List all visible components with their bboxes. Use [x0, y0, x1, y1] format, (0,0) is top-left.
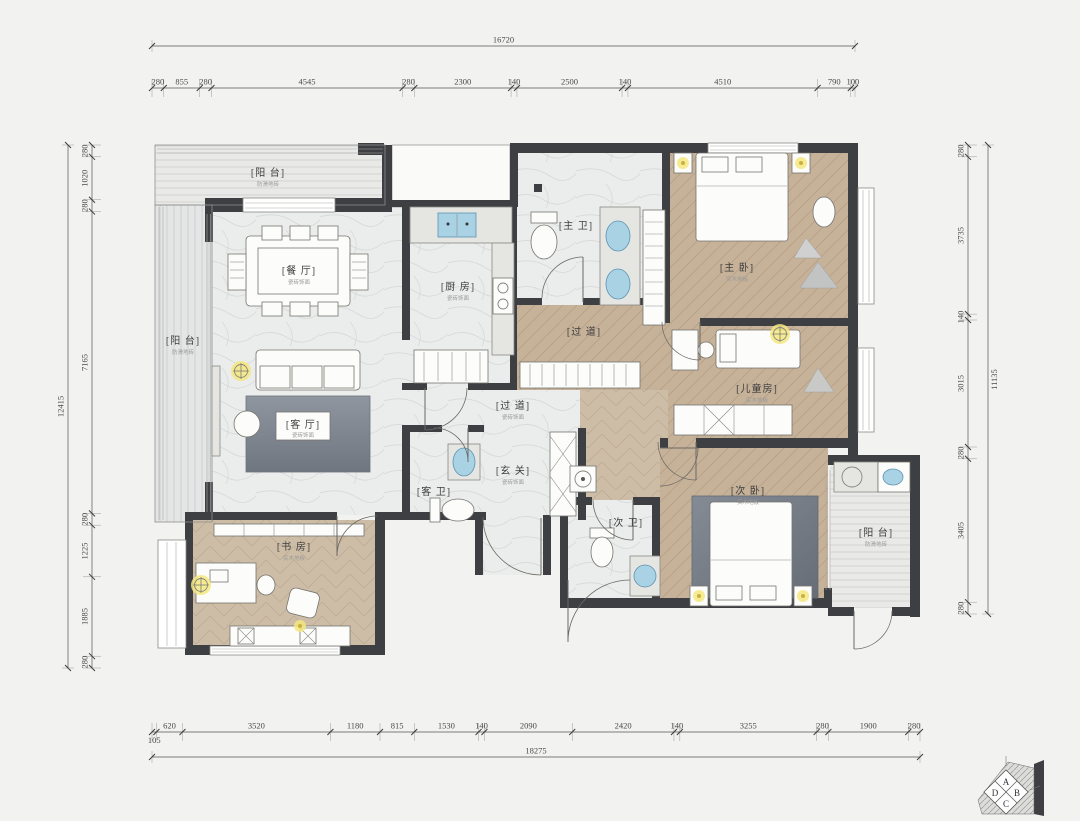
room-sub-master-bed: 实木地板 [726, 275, 749, 283]
room-label-foyer: [玄 关] [496, 464, 530, 477]
toilet [531, 225, 557, 259]
compass: A B C D [978, 756, 1044, 816]
ceiling-lamp [191, 575, 211, 595]
room-label-second-bed: [次 卧] [731, 484, 765, 497]
dim-label: 3015 [956, 375, 966, 392]
dim-label: 280 [199, 77, 212, 87]
room-label-study: [书 房] [277, 540, 311, 553]
room-label-hall-lower: [过 道] [496, 399, 530, 412]
dim-label: 11135 [989, 369, 999, 390]
room-label-second-bath: [次 卫] [609, 516, 643, 529]
dim-label: 790 [828, 77, 841, 87]
dim-label: 2300 [454, 77, 471, 87]
small-lamp [294, 620, 306, 632]
bay-window-kids [858, 348, 874, 432]
room-sub-living: 瓷砖饰面 [292, 431, 315, 439]
floor-balcony-left [155, 205, 212, 522]
dim-label: 2090 [520, 721, 537, 731]
dim-label: 2420 [615, 721, 632, 731]
room-sub-balcony-right: 防滑地砖 [865, 540, 888, 548]
room-sub-second-bed: 实木地板 [737, 498, 760, 506]
dim-label: 280 [80, 656, 90, 669]
laundry-counter [834, 462, 878, 492]
room-label-master-bed: [主 卧] [720, 261, 754, 274]
window-dining [243, 198, 335, 212]
lounge-chair [813, 197, 835, 227]
second-bedroom-furniture [690, 496, 818, 606]
kitchen-cabinet [414, 350, 488, 383]
window-master-top [708, 143, 798, 153]
round-chair [234, 411, 260, 437]
compass-letter-a: A [1003, 777, 1010, 787]
room-label-guest-bath: [客 卫] [417, 485, 451, 498]
balcony-laundry [834, 462, 910, 492]
dim-chain-top: 2808552804545280230014025001404510790100… [149, 35, 859, 98]
dim-label: 1020 [80, 170, 90, 187]
dim-label: 280 [402, 77, 415, 87]
room-sub-study: 实木地板 [283, 554, 306, 562]
dim-chain-right: 28037351403015280340528011135 [956, 142, 1000, 617]
room-label-hall-upper: [过 道] [567, 325, 601, 338]
floor-lobby [392, 145, 510, 207]
study-chair [257, 575, 275, 595]
dim-label: 16720 [493, 35, 514, 45]
dim-label: 280 [80, 145, 90, 158]
closet [643, 210, 665, 325]
sink [606, 269, 630, 299]
dim-label: 620 [163, 721, 176, 731]
kids-wardrobe [674, 405, 792, 435]
room-sub-kitchen: 瓷砖饰面 [447, 294, 470, 302]
dim-chain-left: 280102028071652801225188528012415 [56, 142, 102, 671]
dim-label: 2500 [561, 77, 578, 87]
floor-plan-drawing: [阳 台] 防滑地砖 [阳 台] 防滑地砖 [餐 厅] 瓷砖饰面 [厨 房] 瓷… [0, 0, 1080, 821]
dim-label: 100 [847, 77, 860, 87]
dim-label: 105 [148, 735, 161, 745]
dim-label: 4510 [714, 77, 731, 87]
room-label-master-bath: [主 卫] [559, 220, 593, 232]
dim-label: 1225 [80, 542, 90, 559]
dim-label: 140 [475, 721, 488, 731]
dim-label: 18275 [525, 746, 546, 756]
dim-label: 1530 [438, 721, 455, 731]
dim-label: 3405 [956, 522, 966, 539]
dim-label: 280 [816, 721, 829, 731]
floor-plan-canvas: [阳 台] 防滑地砖 [阳 台] 防滑地砖 [餐 厅] 瓷砖饰面 [厨 房] 瓷… [0, 0, 1080, 821]
tv-cabinet [212, 366, 220, 456]
hall-closet [520, 362, 640, 388]
bedside-lamp [795, 157, 807, 169]
dim-label: 280 [956, 602, 966, 615]
bedside-lamp [693, 590, 705, 602]
dim-label: 12415 [56, 396, 66, 417]
sink [606, 221, 630, 251]
bedside-lamp [797, 590, 809, 602]
room-sub-dining: 瓷砖饰面 [288, 278, 311, 286]
dim-label: 280 [152, 77, 165, 87]
toilet [442, 499, 474, 521]
dim-label: 7165 [80, 354, 90, 371]
laundry-sink [883, 469, 903, 485]
dim-label: 3520 [248, 721, 265, 731]
room-label-kids: [儿童房] [736, 382, 778, 395]
kids-desk [672, 330, 698, 370]
dim-label: 1900 [860, 721, 877, 731]
room-label-balcony-left: [阳 台] [166, 334, 200, 347]
compass-letter-d: D [992, 788, 999, 798]
dim-label: 855 [175, 77, 188, 87]
toilet-tank [531, 212, 557, 223]
dim-label: 815 [391, 721, 404, 731]
dim-label: 140 [956, 311, 966, 324]
dim-label: 280 [908, 721, 921, 731]
compass-letter-c: C [1003, 799, 1009, 809]
dim-label: 1180 [347, 721, 364, 731]
dim-label: 280 [956, 145, 966, 158]
toilet-tank [430, 498, 440, 522]
room-sub-balcony-tl: 防滑地砖 [257, 180, 280, 188]
dim-label: 280 [80, 199, 90, 212]
bay-window-master [858, 188, 874, 304]
toilet [591, 537, 613, 567]
dim-label: 280 [80, 513, 90, 526]
dim-label: 1885 [80, 608, 90, 625]
room-sub-hall-lower: 瓷砖饰面 [502, 413, 525, 421]
room-label-dining: [餐 厅] [282, 264, 316, 277]
window-study-bottom [210, 646, 340, 655]
sink [634, 565, 656, 587]
dim-label: 140 [508, 77, 521, 87]
dim-chain-bottom: 1056203520118081515301402090242014032552… [148, 721, 923, 764]
dim-label: 280 [956, 447, 966, 460]
room-label-balcony-right: [阳 台] [859, 526, 893, 539]
dim-label: 3255 [740, 721, 757, 731]
room-label-balcony-tl: [阳 台] [251, 166, 285, 179]
room-label-kitchen: [厨 房] [441, 280, 475, 293]
dim-label: 140 [671, 721, 684, 731]
room-sub-foyer: 瓷砖饰面 [502, 478, 525, 486]
dim-label: 140 [619, 77, 632, 87]
compass-letter-b: B [1014, 788, 1020, 798]
room-sub-balcony-left: 防滑地砖 [172, 348, 195, 356]
study-shelf [214, 524, 364, 536]
bedside-lamp [677, 157, 689, 169]
dim-label: 4545 [299, 77, 316, 87]
room-label-living: [客 厅] [286, 418, 320, 431]
floor-entry-vestibule [480, 520, 548, 575]
dim-label: 3735 [956, 227, 966, 244]
bay-window-study [158, 540, 186, 648]
ceiling-lamp [770, 324, 790, 344]
ceiling-lamp [231, 361, 251, 381]
sink [453, 448, 475, 476]
floor-hall-lower [408, 390, 580, 428]
room-sub-kids: 实木地板 [746, 396, 769, 404]
